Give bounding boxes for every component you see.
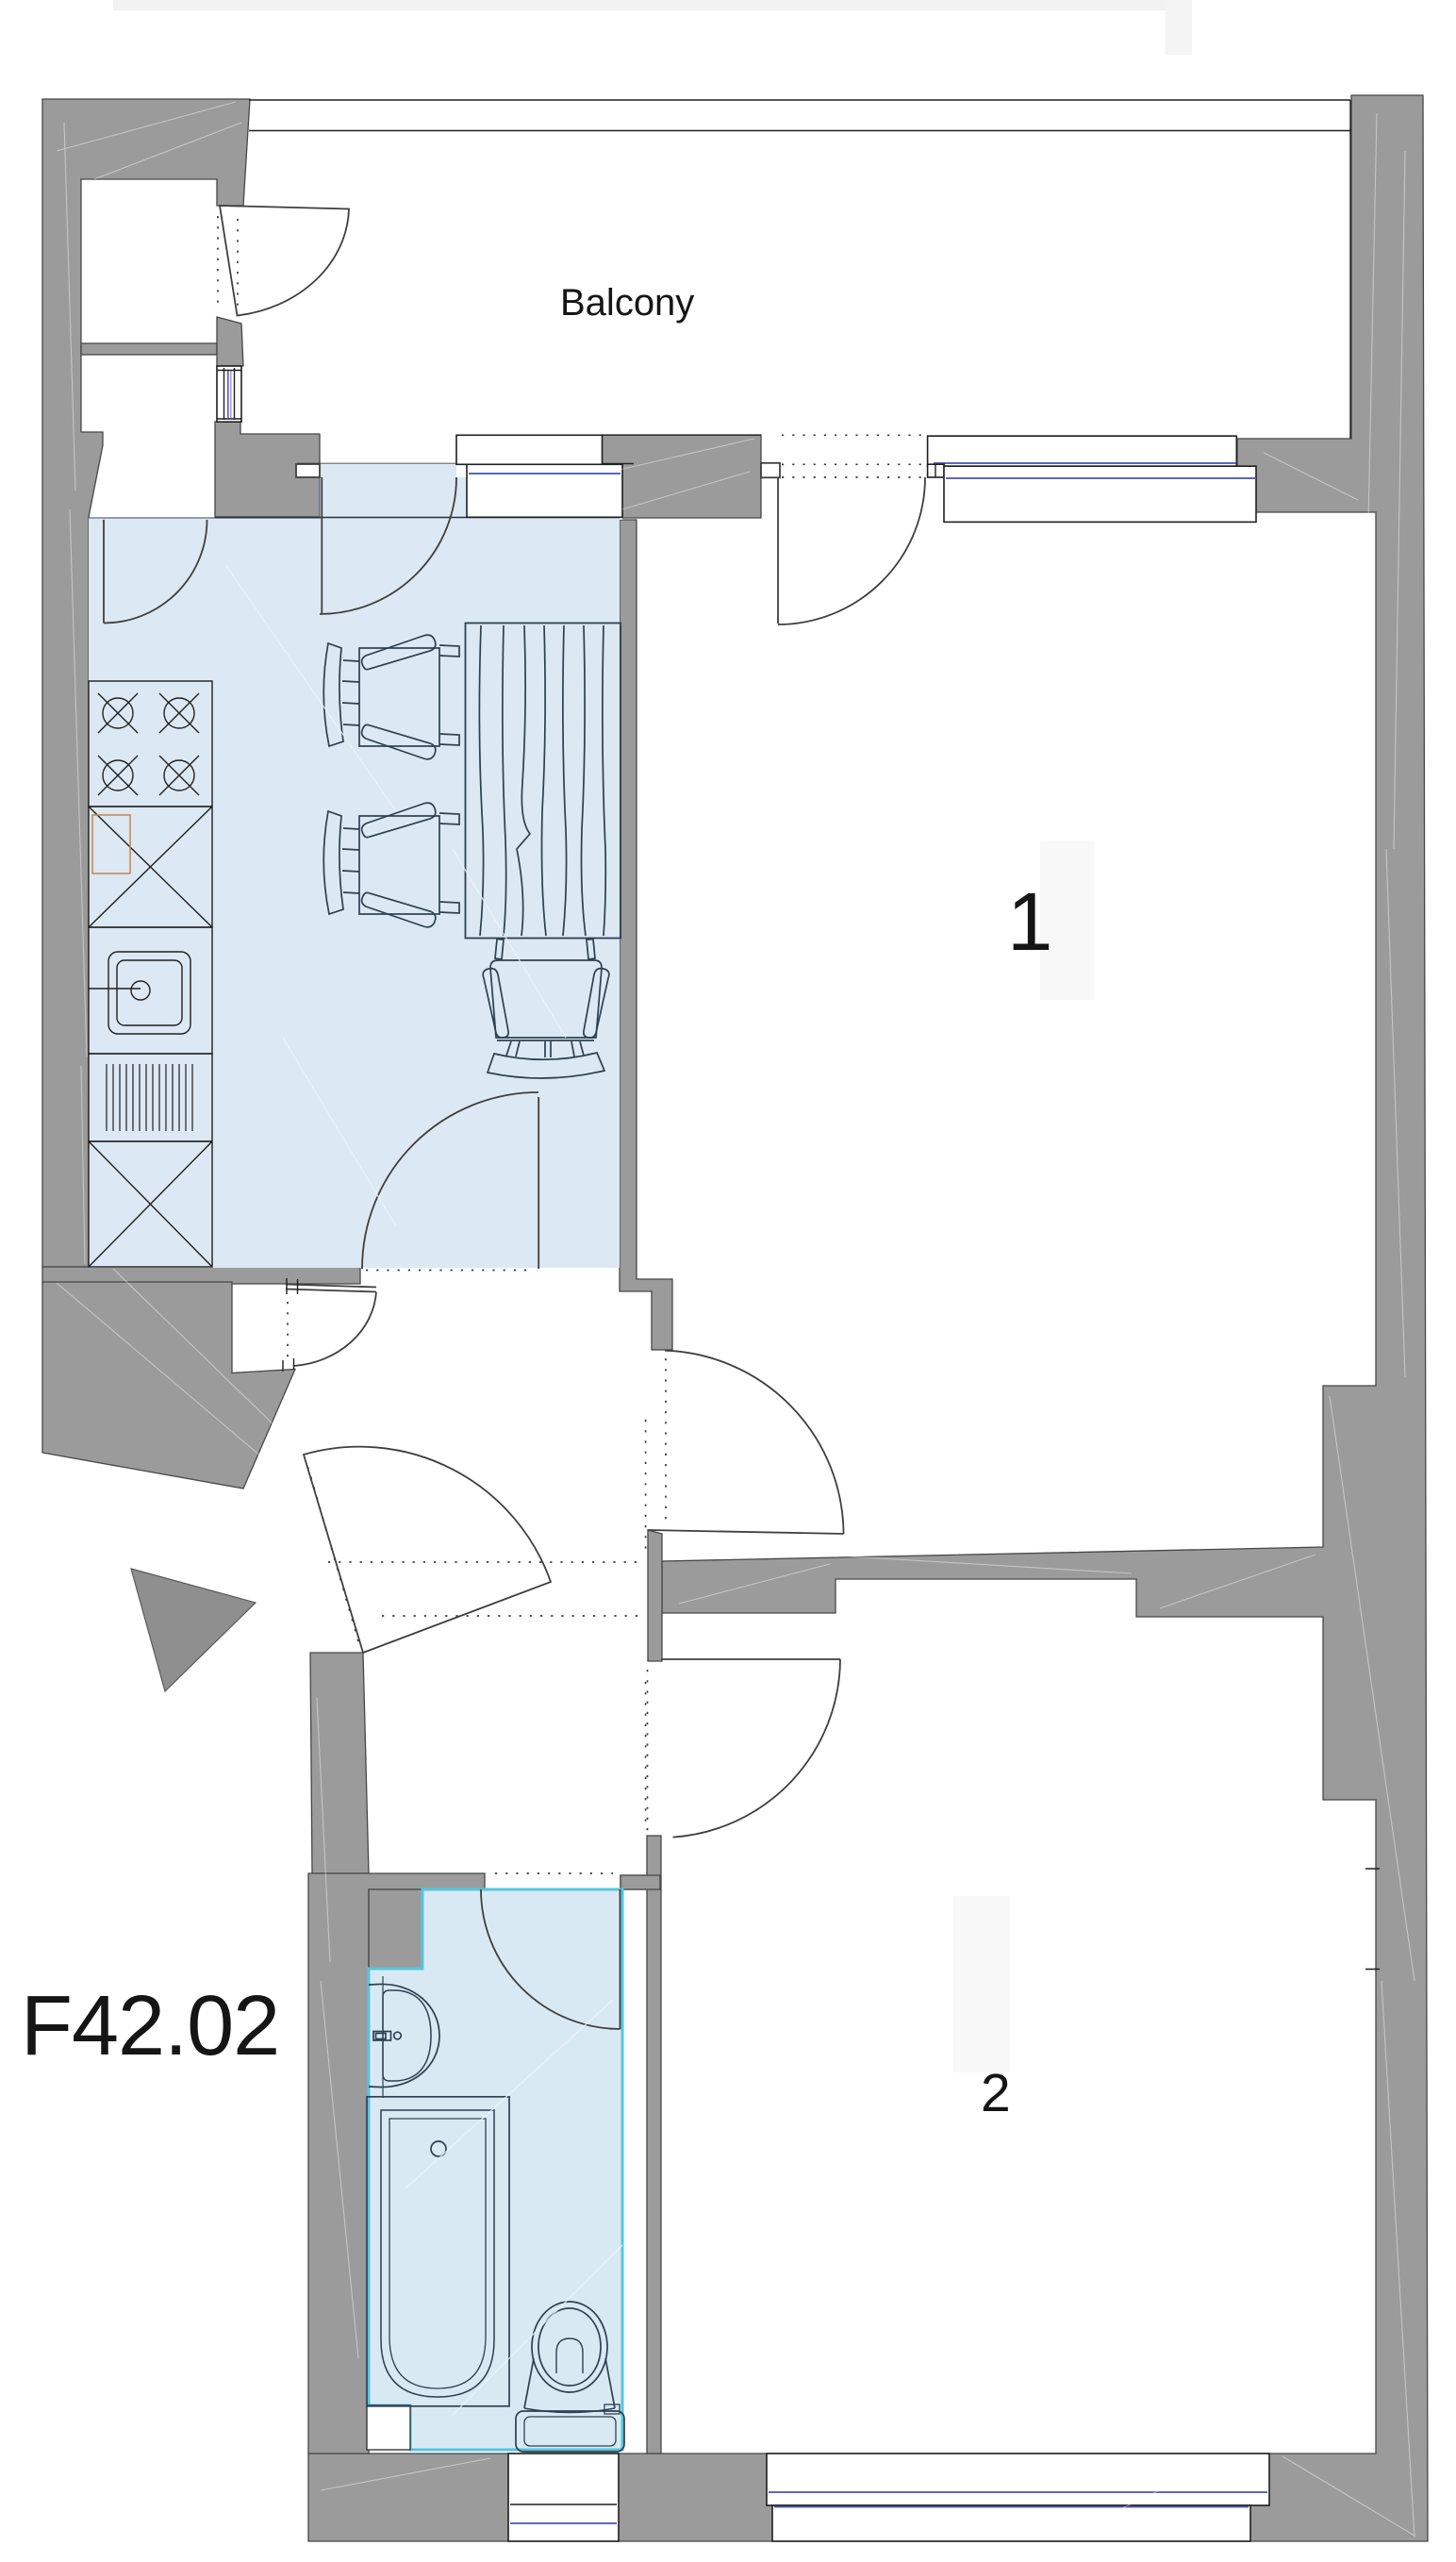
svg-text:1: 1 <box>1007 876 1052 968</box>
svg-text:F42.02: F42.02 <box>21 1979 279 2073</box>
svg-text:2: 2 <box>981 2063 1011 2123</box>
svg-text:Balcony: Balcony <box>560 282 694 324</box>
